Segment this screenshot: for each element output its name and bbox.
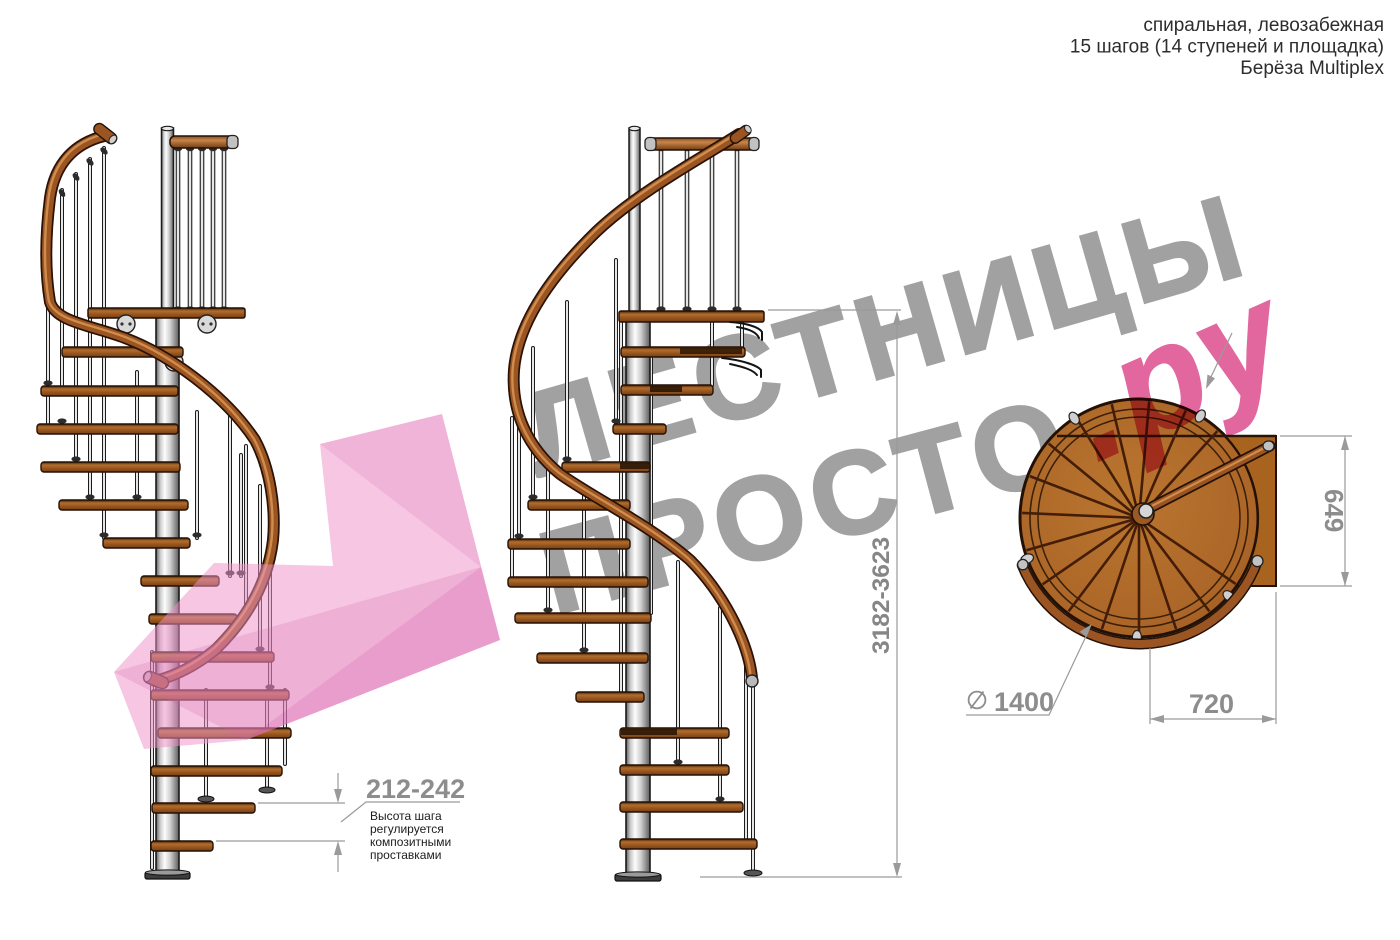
svg-text:регулируется: регулируется — [370, 822, 444, 836]
svg-text:Берёза Multiplex: Берёза Multiplex — [1240, 58, 1384, 79]
svg-text:Высота шага: Высота шага — [370, 809, 442, 823]
svg-text:3182-3623: 3182-3623 — [868, 537, 895, 654]
svg-text:проставками: проставками — [370, 848, 441, 862]
svg-text:649: 649 — [1319, 489, 1349, 532]
svg-text:композитными: композитными — [370, 835, 451, 849]
svg-text:1400: 1400 — [994, 687, 1054, 717]
svg-text:720: 720 — [1189, 689, 1234, 719]
svg-text:212-242: 212-242 — [366, 774, 465, 804]
svg-text:спиральная, левозабежная: спиральная, левозабежная — [1143, 15, 1384, 36]
svg-text:15 шагов (14 ступеней и площад: 15 шагов (14 ступеней и площадка) — [1070, 37, 1384, 58]
